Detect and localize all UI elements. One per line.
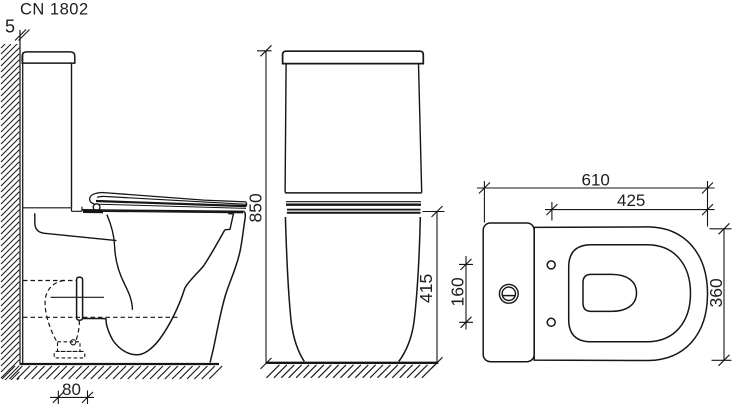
svg-text:CN 1802: CN 1802 [20,1,89,19]
svg-text:5: 5 [5,17,15,37]
svg-text:425: 425 [617,191,645,210]
svg-text:80: 80 [62,380,81,399]
svg-text:360: 360 [706,278,726,307]
svg-text:160: 160 [448,277,468,306]
svg-text:415: 415 [416,274,436,303]
svg-text:850: 850 [246,193,266,222]
svg-text:610: 610 [582,170,610,189]
